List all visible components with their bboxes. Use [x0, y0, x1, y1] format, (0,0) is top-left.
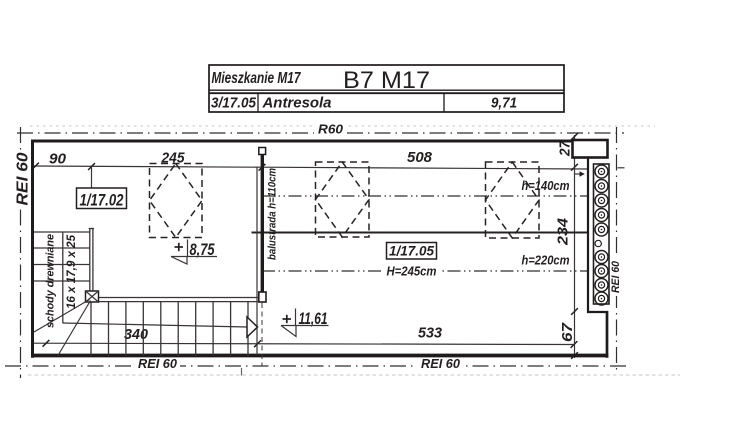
- svg-text:16 x 17,9 x 25: 16 x 17,9 x 25: [64, 235, 78, 309]
- svg-text:REI 60: REI 60: [138, 356, 178, 371]
- svg-text:h=140cm: h=140cm: [522, 178, 570, 193]
- svg-text:67: 67: [559, 322, 576, 342]
- svg-text:B7 M17: B7 M17: [343, 67, 430, 94]
- svg-text:balustrada h=110cm: balustrada h=110cm: [267, 168, 279, 260]
- svg-text:REI 60: REI 60: [610, 260, 622, 293]
- svg-text:508: 508: [407, 149, 433, 166]
- svg-text:1/17.02: 1/17.02: [80, 190, 124, 209]
- svg-text:90: 90: [49, 151, 67, 168]
- svg-text:h=220cm: h=220cm: [522, 253, 570, 268]
- svg-text:27: 27: [556, 140, 573, 156]
- svg-text:schody drewniane: schody drewniane: [45, 234, 57, 328]
- svg-text:R60: R60: [318, 122, 344, 137]
- svg-text:3/17.05: 3/17.05: [211, 95, 257, 112]
- svg-text:340: 340: [124, 326, 149, 343]
- svg-text:REI 60: REI 60: [14, 152, 31, 205]
- svg-text:H=245cm: H=245cm: [387, 264, 437, 279]
- svg-text:Antresola: Antresola: [262, 95, 332, 112]
- svg-text:9,71: 9,71: [491, 95, 517, 112]
- svg-text:REI 60: REI 60: [421, 356, 461, 371]
- svg-text:533: 533: [418, 325, 443, 342]
- svg-text:1/17.05: 1/17.05: [389, 243, 434, 259]
- svg-text:Mieszkanie M17: Mieszkanie M17: [212, 70, 302, 87]
